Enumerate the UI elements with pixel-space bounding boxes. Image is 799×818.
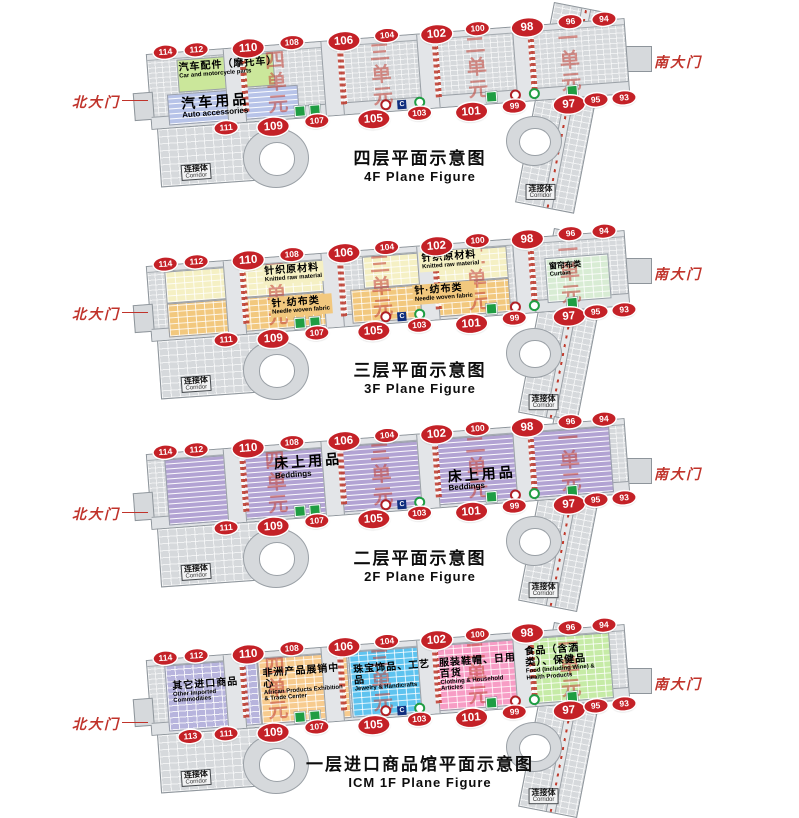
gate-badge: 103 (407, 712, 431, 727)
zone-label: 床上用品Beddings (272, 451, 346, 483)
c-logo-icon: C (397, 706, 407, 716)
north-gate-stub (133, 304, 155, 333)
gate-badge: 108 (280, 35, 304, 50)
gate-badge: 99 (503, 311, 527, 326)
south-gate-label: 南大门 (654, 264, 702, 284)
gate-badge: 104 (375, 428, 399, 443)
corridor-label: 连接体Corridor (529, 582, 559, 598)
gate-badge: 105 (357, 109, 389, 129)
gate-badge: 101 (455, 314, 487, 334)
corridor-label-en: Corridor (532, 591, 556, 597)
corridor-label: 连接体Corridor (181, 375, 212, 393)
gate-badge: 101 (455, 102, 487, 122)
gate-badge: 96 (559, 14, 583, 29)
corridor-label: 连接体Corridor (526, 184, 556, 200)
gate-badge: 95 (584, 493, 608, 508)
north-gate-line (122, 100, 148, 101)
gate-badge: 114 (153, 257, 177, 272)
gate-badge: 93 (612, 91, 636, 106)
gate-row-top: 114112110108106104102100989694 (146, 223, 623, 259)
gate-badge: 108 (280, 435, 304, 450)
eco-icon (528, 88, 540, 100)
corridor-label: 连接体Corridor (529, 788, 559, 804)
toilet-icon (485, 303, 497, 315)
gate-badge: 107 (305, 114, 329, 129)
caption-en: ICM 1F Plane Figure (270, 775, 570, 790)
eco-icon (528, 300, 540, 312)
caption-cn: 四层平面示意图 (270, 144, 570, 169)
eco-icon (528, 694, 540, 706)
caption-cn: 二层平面示意图 (270, 544, 570, 569)
gate-badge: 96 (559, 620, 583, 635)
gate-badge: 105 (357, 321, 389, 341)
zone-label: 食品（含酒类）、保健品Food (Including Wine) & Healt… (522, 640, 610, 683)
toilet-icon (485, 91, 497, 103)
gate-badge: 94 (592, 12, 616, 27)
corridor-label: 连接体Corridor (181, 563, 212, 581)
zone-label: 珠宝饰品、工艺品Jewelry & Handicrafts (351, 657, 438, 694)
caption-en: 4F Plane Figure (270, 169, 570, 184)
north-gate-label: 北大门 (72, 714, 120, 734)
eco-icon (528, 488, 540, 500)
gate-badge: 93 (612, 491, 636, 506)
north-gate-line (122, 722, 148, 723)
gate-badge: 95 (584, 699, 608, 714)
gate-badge: 100 (466, 421, 490, 436)
gate-badge: 104 (375, 28, 399, 43)
gate-badge: 100 (466, 233, 490, 248)
floor-caption: 一层进口商品馆平面示意图ICM 1F Plane Figure (270, 750, 570, 790)
floor-caption: 四层平面示意图4F Plane Figure (270, 144, 570, 184)
floor-caption: 二层平面示意图2F Plane Figure (270, 544, 570, 584)
caption-cn: 一层进口商品馆平面示意图 (270, 750, 570, 775)
gate-badge: 98 (511, 229, 543, 249)
gate-badge: 99 (503, 499, 527, 514)
floor-plans-canvas: 连接体Corridor连接体Corridor四单元三单元二单元一单元汽车配件（摩… (0, 0, 799, 799)
gate-badge: 112 (184, 648, 208, 663)
gate-badge: 114 (153, 651, 177, 666)
gate-badge: 94 (592, 224, 616, 239)
gate-badge: 94 (592, 412, 616, 427)
north-gate-label: 北大门 (72, 504, 120, 524)
gate-badge: 103 (407, 318, 431, 333)
floor-plan-2f: 连接体Corridor连接体Corridor四单元三单元二单元一单元床上用品Be… (0, 402, 799, 607)
gate-badge: 112 (184, 42, 208, 57)
gate-badge: 93 (612, 697, 636, 712)
gate-badge: 94 (592, 618, 616, 633)
toilet-icon (485, 697, 497, 709)
corridor-label-cn: 连接体 (532, 789, 556, 797)
gate-badge: 106 (327, 243, 359, 263)
gate-badge: 103 (407, 506, 431, 521)
gate-badge: 100 (466, 627, 490, 642)
gate-badge: 95 (584, 93, 608, 108)
c-logo-icon: C (397, 312, 407, 322)
corridor-label-en: Corridor (184, 384, 208, 392)
corridor-label-cn: 连接体 (529, 185, 553, 193)
gate-badge: 105 (357, 715, 389, 735)
north-gate-line (122, 312, 148, 313)
north-gate-stub (133, 492, 155, 521)
gate-badge: 107 (305, 326, 329, 341)
gate-badge: 93 (612, 303, 636, 318)
gate-badge: 107 (305, 514, 329, 529)
north-gate-stub (133, 92, 155, 121)
floor-caption: 三层平面示意图3F Plane Figure (270, 356, 570, 396)
gate-badge: 104 (375, 240, 399, 255)
north-gate-line (122, 512, 148, 513)
zone-label: 服装鞋帽、日用百货Clothing & Household Articles (437, 651, 525, 694)
gate-badge: 101 (455, 708, 487, 728)
gate-badge: 105 (357, 509, 389, 529)
gate-badge: 98 (511, 17, 543, 37)
gate-badge: 95 (584, 305, 608, 320)
corridor-label-en: Corridor (529, 193, 553, 199)
gate-badge: 112 (184, 254, 208, 269)
toilet-icon (295, 711, 307, 723)
corridor-label: 连接体Corridor (181, 163, 212, 181)
toilet-icon (295, 105, 307, 117)
corridor-label-en: Corridor (532, 797, 556, 803)
south-gate-label: 南大门 (654, 674, 702, 694)
zone-label: 窗帘布类Curtain (547, 259, 584, 279)
gate-badge: 99 (503, 99, 527, 114)
c-logo-icon: C (397, 100, 407, 110)
floor-plan-4f: 连接体Corridor连接体Corridor四单元三单元二单元一单元汽车配件（摩… (0, 2, 799, 207)
corridor-label: 连接体Corridor (181, 769, 212, 787)
toilet-icon (485, 491, 497, 503)
gate-badge: 106 (327, 31, 359, 51)
floor-plan-1f: 连接体Corridor连接体Corridor四单元三单元二单元一单元其它进口商品… (0, 608, 799, 813)
corridor-label-en: Corridor (184, 778, 208, 786)
gate-badge: 96 (559, 414, 583, 429)
gate-badge: 108 (280, 641, 304, 656)
caption-cn: 三层平面示意图 (270, 356, 570, 381)
gate-badge: 101 (455, 502, 487, 522)
corridor-label-cn: 连接体 (532, 583, 556, 591)
north-gate-label: 北大门 (72, 304, 120, 324)
floor-plan-3f: 连接体Corridor连接体Corridor四单元三单元二单元一单元针织原材料K… (0, 214, 799, 419)
zone-label: 床上用品Beddings (445, 463, 519, 495)
toilet-icon (295, 505, 307, 517)
gate-badge: 104 (375, 634, 399, 649)
south-gate-label: 南大门 (654, 464, 702, 484)
caption-en: 3F Plane Figure (270, 381, 570, 396)
caption-en: 2F Plane Figure (270, 569, 570, 584)
unit-label: 二单元 (462, 34, 487, 101)
corridor-label-en: Corridor (184, 172, 208, 180)
zone-label-en: Curtain (550, 269, 582, 278)
gate-badge: 96 (559, 226, 583, 241)
gate-badge: 114 (153, 445, 177, 460)
corridor-label-en: Corridor (184, 572, 208, 580)
gate-badge: 102 (420, 24, 452, 44)
gate-badge: 100 (466, 21, 490, 36)
gate-badge: 112 (184, 442, 208, 457)
zone-label: 非洲产品展销中心African Products Exhibition & Tr… (260, 661, 350, 705)
gate-badge: 114 (153, 45, 177, 60)
gate-badge: 103 (407, 106, 431, 121)
gate-badge: 99 (503, 705, 527, 720)
gate-badge: 107 (305, 720, 329, 735)
south-gate-label: 南大门 (654, 52, 702, 72)
toilet-icon (295, 317, 307, 329)
gate-badge: 108 (280, 247, 304, 262)
c-logo-icon: C (397, 500, 407, 510)
north-gate-label: 北大门 (72, 92, 120, 112)
